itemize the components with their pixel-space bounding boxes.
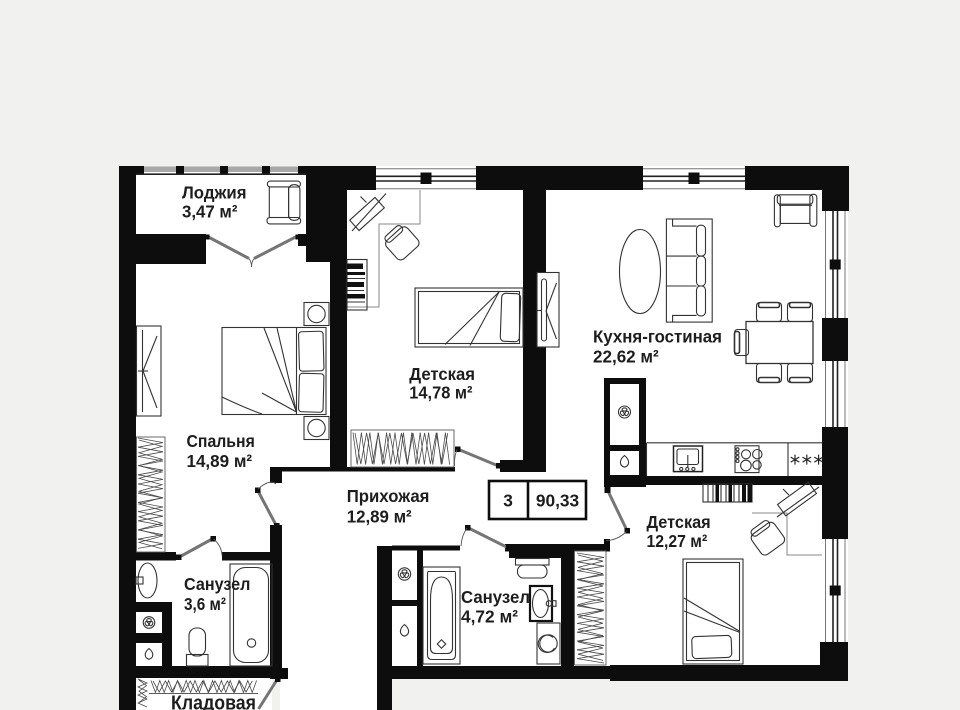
- svg-text:Кухня-гостиная: Кухня-гостиная: [593, 326, 722, 346]
- svg-text:Лоджия: Лоджия: [182, 183, 247, 203]
- svg-text:22,62 м²: 22,62 м²: [593, 347, 659, 367]
- svg-text:12,89 м²: 12,89 м²: [347, 507, 412, 527]
- svg-text:90,33: 90,33: [536, 491, 579, 511]
- svg-text:14,89 м²: 14,89 м²: [187, 451, 253, 471]
- svg-text:4,72 м²: 4,72 м²: [461, 606, 518, 626]
- svg-text:3,47 м²: 3,47 м²: [182, 201, 238, 221]
- svg-text:3,6 м²: 3,6 м²: [184, 594, 226, 614]
- svg-text:Детская: Детская: [647, 512, 711, 532]
- svg-text:12,27 м²: 12,27 м²: [647, 531, 708, 551]
- svg-text:Прихожая: Прихожая: [347, 486, 430, 506]
- svg-text:Санузел: Санузел: [184, 574, 250, 594]
- svg-text:Спальня: Спальня: [187, 431, 255, 451]
- svg-text:Кладовая: Кладовая: [171, 693, 256, 710]
- svg-text:3: 3: [503, 491, 513, 511]
- svg-text:14,78 м²: 14,78 м²: [409, 383, 472, 403]
- svg-text:Санузел: Санузел: [461, 587, 530, 607]
- svg-text:Детская: Детская: [409, 364, 475, 384]
